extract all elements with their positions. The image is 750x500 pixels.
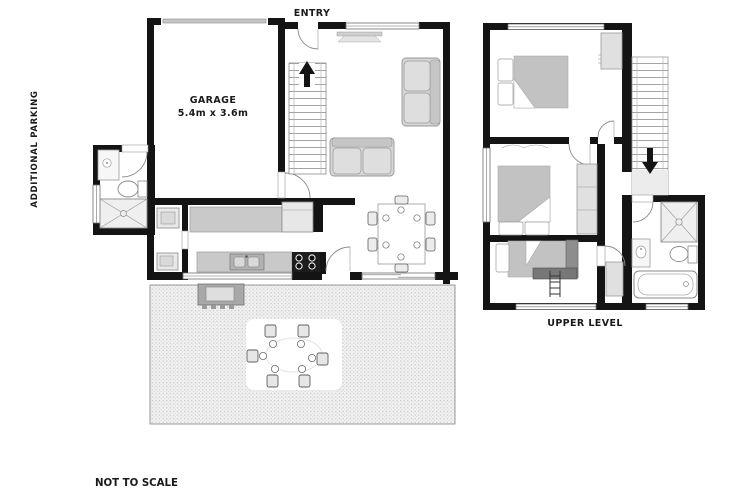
sofa-two-seater-horizontal: [330, 138, 394, 176]
bedroom1: [498, 33, 622, 108]
garage-label: GARAGE: [190, 95, 237, 106]
stairs-down: [632, 57, 668, 195]
linen-cupboard: [606, 262, 623, 296]
entry-door: [298, 29, 318, 49]
shower-upper: [661, 202, 697, 242]
sofa-two-seater-vertical: [402, 58, 440, 126]
garage-door: [161, 17, 268, 25]
bathroom-upper: [632, 202, 697, 298]
bathroom-upper-door: [632, 195, 653, 222]
laundry-tub: [157, 253, 178, 270]
laundry-washer: [157, 208, 179, 228]
kitchen-sink: [230, 254, 264, 270]
floor-plan-page: ENTRY GARAGE 5.4m x 3.6m: [0, 0, 750, 500]
bedroom2-wardrobe: [577, 164, 597, 234]
not-to-scale-label: NOT TO SCALE: [95, 477, 458, 490]
bedroom1-wardrobe: [601, 33, 622, 69]
toilet-lower: [118, 181, 147, 197]
refrigerator: [282, 202, 313, 232]
floor-plan-drawing: ENTRY GARAGE 5.4m x 3.6m: [0, 0, 750, 500]
bathroom-lower: [98, 150, 147, 228]
bedroom2: [498, 145, 597, 235]
entry-label: ENTRY: [294, 8, 331, 19]
upper-level-plan: UPPER LEVEL: [483, 23, 705, 329]
lower-level-plan: ENTRY GARAGE 5.4m x 3.6m: [93, 8, 458, 424]
bedroom3: [496, 240, 578, 297]
dining-table-indoor: [368, 196, 435, 272]
stove-cooktop: [292, 252, 320, 272]
bedroom2-door: [569, 144, 590, 165]
vanity-sink-lower: [98, 150, 119, 180]
bathroom-door-lower: [122, 145, 148, 177]
additional-parking-label: ADDITIONAL PARKING: [30, 90, 40, 207]
stairs-up: [289, 61, 326, 174]
garage-dimensions: 5.4m x 3.6m: [178, 108, 249, 119]
bedroom3-desk: [533, 268, 577, 279]
toilet-upper: [670, 246, 697, 263]
bathtub: [634, 271, 697, 298]
garage-internal-door: [278, 172, 310, 198]
kitchen-bench-upper: [190, 207, 282, 232]
outdoor-dining-setting: [246, 319, 342, 390]
vanity-sink-upper: [632, 239, 650, 267]
tv-unit: [337, 32, 382, 42]
bbq-grill: [198, 284, 244, 309]
laundry-door: [182, 231, 188, 249]
bedroom1-door: [598, 121, 614, 137]
kitchen-patio-door: [326, 247, 350, 271]
footer-notes: NOT TO SCALE Disclaimer: For marketing p…: [95, 451, 458, 500]
upper-level-label: UPPER LEVEL: [547, 318, 623, 329]
shower-lower: [100, 199, 147, 228]
